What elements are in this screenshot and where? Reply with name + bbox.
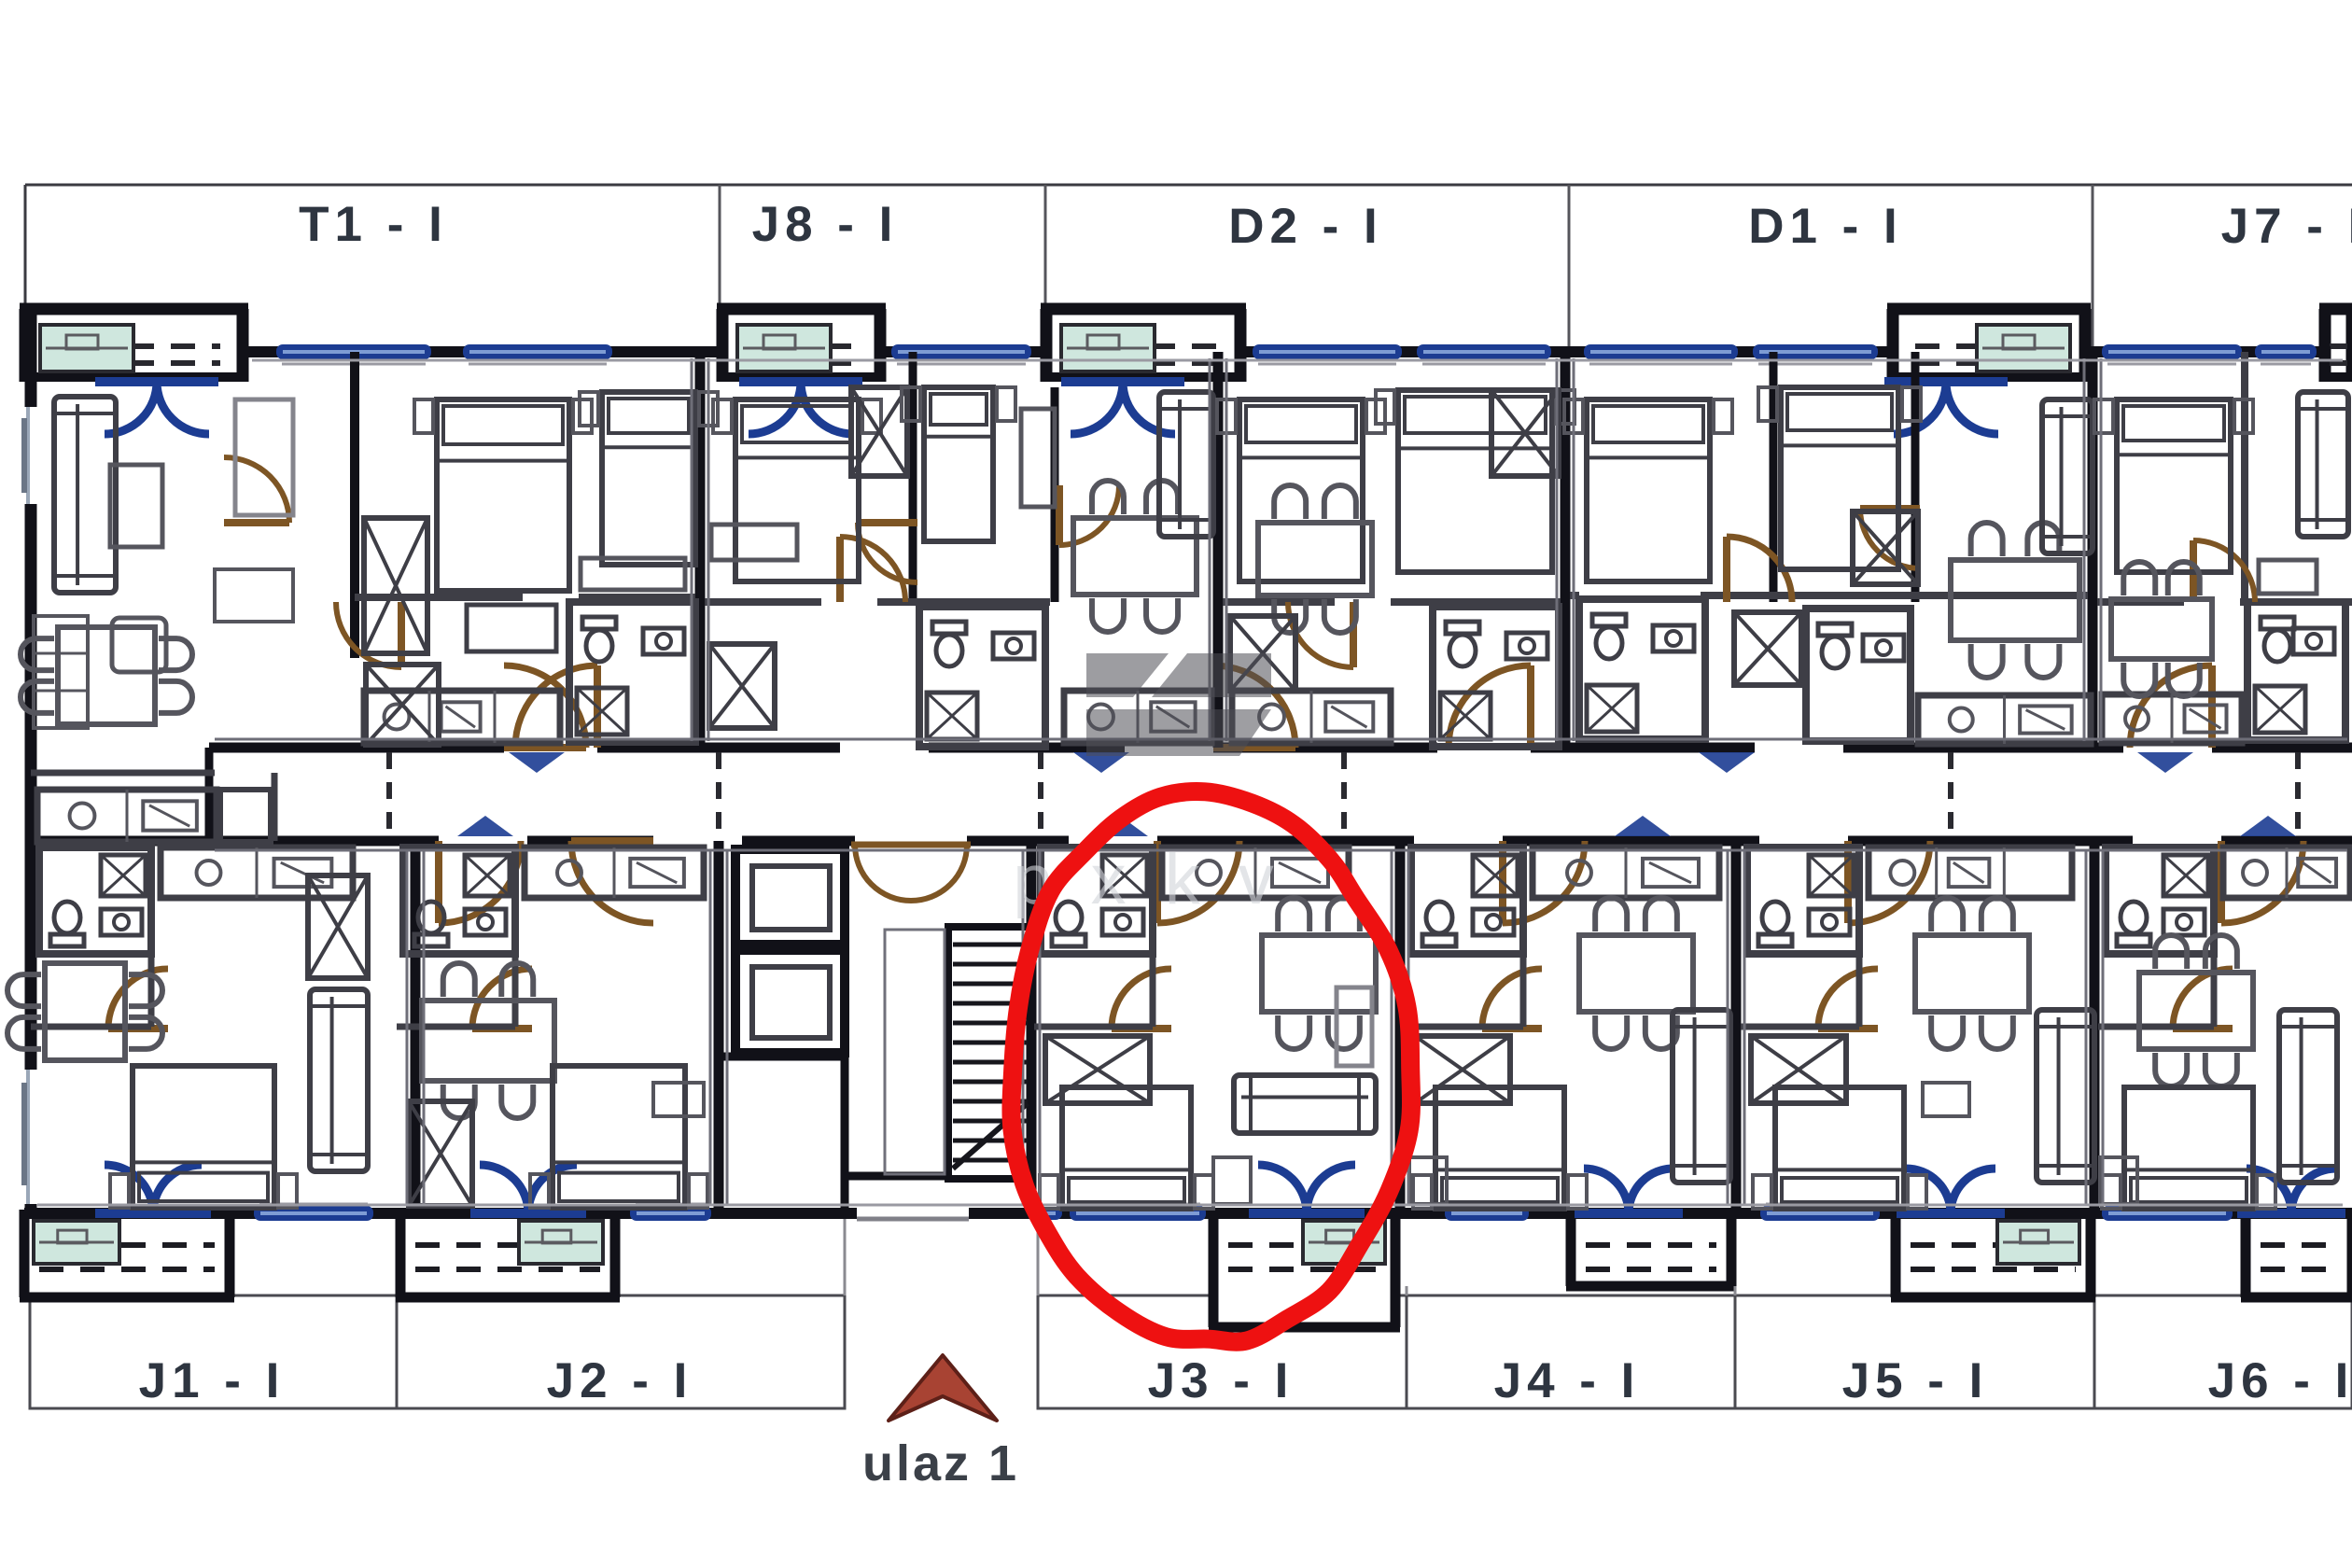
svg-text:J2 - I: J2 - I <box>547 1353 693 1408</box>
svg-text:D2 - I: D2 - I <box>1228 199 1383 254</box>
svg-text:J1 - I: J1 - I <box>139 1353 286 1408</box>
svg-text:J7 - I: J7 - I <box>2221 199 2352 254</box>
svg-text:T1 - I: T1 - I <box>299 197 448 252</box>
svg-text:D1 - I: D1 - I <box>1748 199 1903 254</box>
svg-text:J5 - I: J5 - I <box>1842 1353 1989 1408</box>
svg-text:J3 - I: J3 - I <box>1148 1353 1295 1408</box>
svg-text:ulaz 1: ulaz 1 <box>862 1435 1019 1491</box>
svg-text:J8 - I: J8 - I <box>752 197 899 252</box>
svg-text:J6 - I: J6 - I <box>2208 1353 2352 1408</box>
svg-text:J4 - I: J4 - I <box>1494 1353 1641 1408</box>
